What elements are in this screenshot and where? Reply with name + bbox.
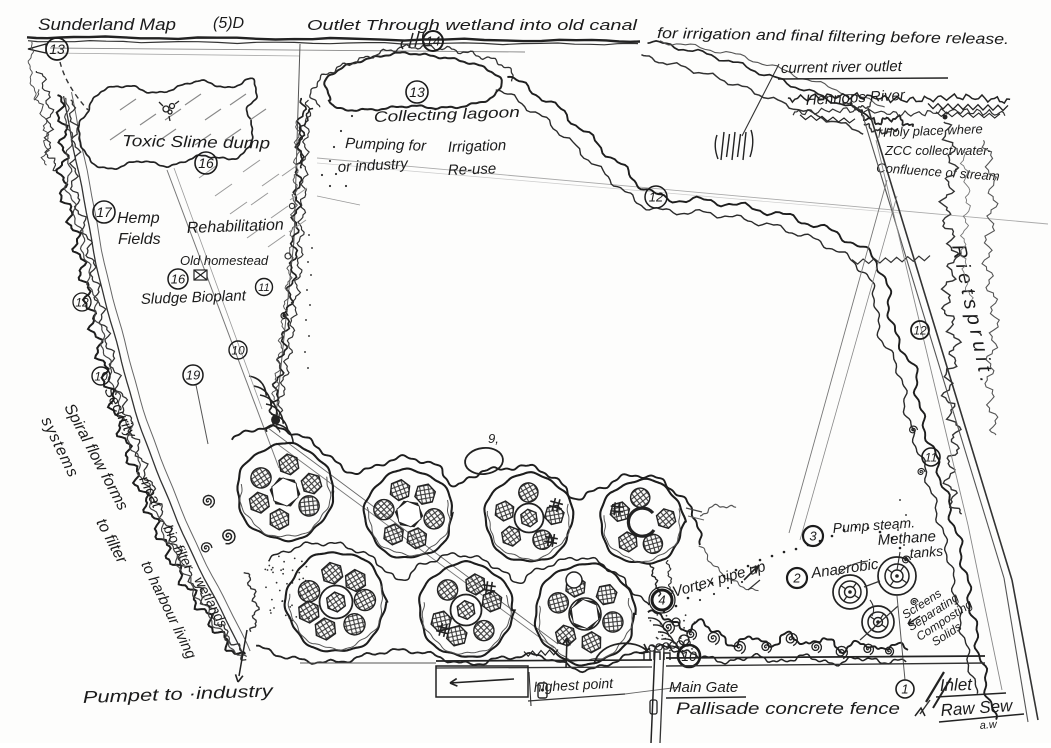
svg-text:a.w: a.w (979, 718, 998, 732)
svg-text:current river outlet: current river outlet (781, 58, 903, 77)
svg-text:(5)D: (5)D (213, 15, 245, 32)
svg-text:Irrigation: Irrigation (448, 137, 507, 156)
svg-text:4: 4 (658, 593, 665, 608)
svg-text:10: 10 (681, 648, 697, 664)
svg-text:13: 13 (49, 41, 65, 57)
svg-text:Toxic Slime dump: Toxic Slime dump (122, 133, 270, 153)
svg-text:12: 12 (913, 323, 927, 337)
svg-text:Old homestead: Old homestead (180, 253, 269, 268)
svg-text:Pumping for: Pumping for (345, 135, 427, 155)
svg-text:Fields: Fields (118, 231, 161, 248)
svg-text:ZCC collect water-: ZCC collect water- (884, 143, 992, 158)
svg-text:12: 12 (75, 295, 89, 309)
svg-text:16: 16 (171, 272, 186, 287)
svg-text:16: 16 (198, 155, 214, 171)
svg-text:12: 12 (649, 190, 664, 205)
svg-text:Pallisade concrete fence: Pallisade concrete fence (676, 699, 900, 718)
svg-text:Outlet Through wetland into ol: Outlet Through wetland into old canal (307, 17, 638, 34)
svg-text:Sunderland Map: Sunderland Map (38, 15, 176, 34)
svg-text:Rehabilitation: Rehabilitation (187, 217, 285, 237)
svg-text:2: 2 (792, 571, 801, 586)
svg-text:10: 10 (231, 343, 245, 357)
svg-text:10: 10 (94, 369, 108, 383)
svg-text:19: 19 (186, 368, 200, 383)
svg-text:14: 14 (426, 34, 440, 49)
svg-text:1: 1 (901, 682, 908, 697)
svg-text:Main Gate: Main Gate (669, 679, 738, 696)
svg-text:13: 13 (409, 84, 425, 100)
svg-text:3: 3 (809, 529, 817, 544)
svg-text:Hemp: Hemp (117, 210, 160, 227)
svg-text:11: 11 (258, 282, 269, 294)
svg-text:9,: 9, (488, 431, 499, 446)
svg-text:11: 11 (925, 450, 937, 464)
svg-text:Re-use: Re-use (448, 160, 497, 179)
svg-text:17: 17 (96, 204, 113, 220)
svg-text:tanks: tanks (909, 543, 944, 561)
svg-text:Inlet: Inlet (939, 675, 973, 695)
